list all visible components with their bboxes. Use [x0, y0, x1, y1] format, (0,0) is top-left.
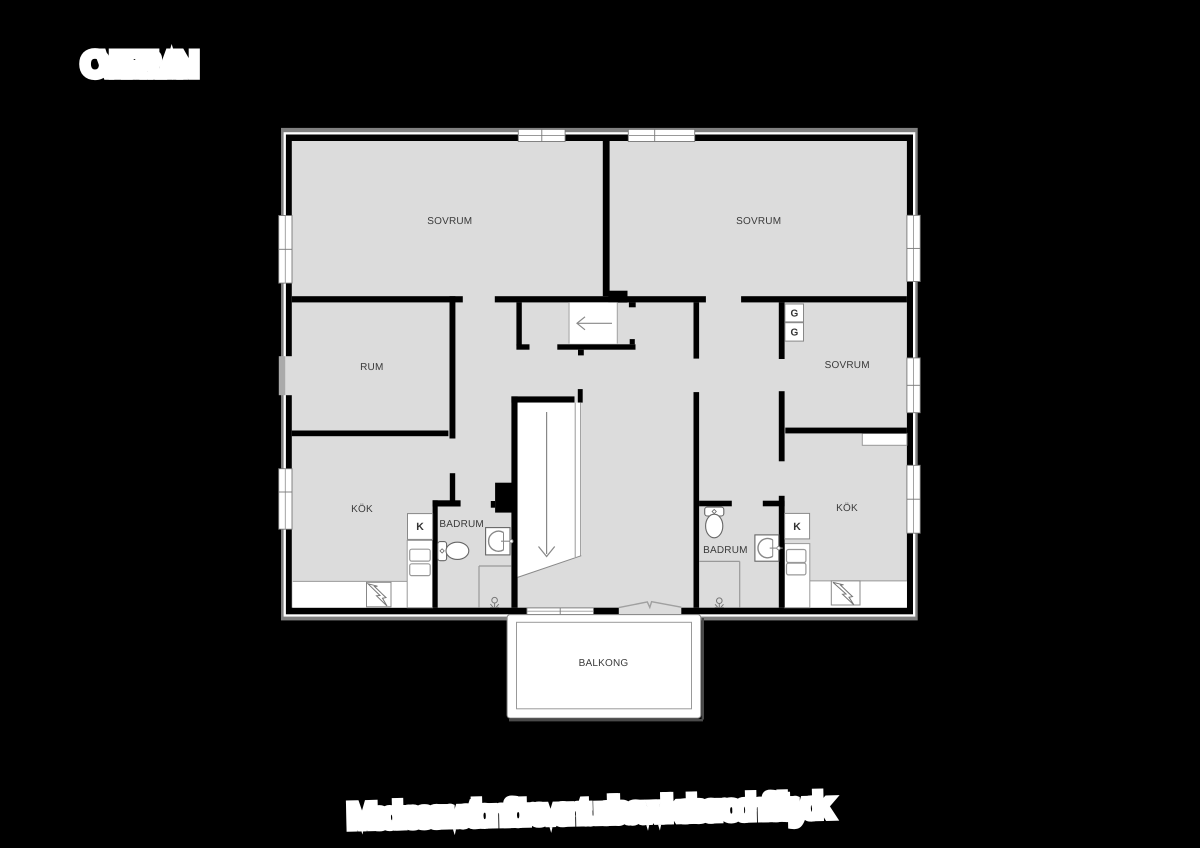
svg-text:K: K — [793, 521, 801, 533]
svg-text:K: K — [416, 521, 424, 533]
svg-text:BADRUM: BADRUM — [439, 519, 484, 530]
svg-text:SOVRUM: SOVRUM — [427, 216, 472, 227]
svg-text:BADRUM: BADRUM — [703, 545, 748, 556]
svg-text:KÖK: KÖK — [836, 502, 858, 514]
svg-text:G: G — [791, 309, 799, 320]
svg-text:SOVRUM: SOVRUM — [736, 216, 781, 227]
svg-text:G: G — [791, 327, 799, 338]
svg-text:OVERPLAN: OVERPLAN — [81, 44, 199, 85]
svg-text:RUM: RUM — [360, 362, 383, 373]
svg-text:BALKONG: BALKONG — [579, 658, 629, 669]
svg-text:KÖK: KÖK — [351, 503, 373, 515]
svg-text:SOVRUM: SOVRUM — [825, 360, 870, 371]
